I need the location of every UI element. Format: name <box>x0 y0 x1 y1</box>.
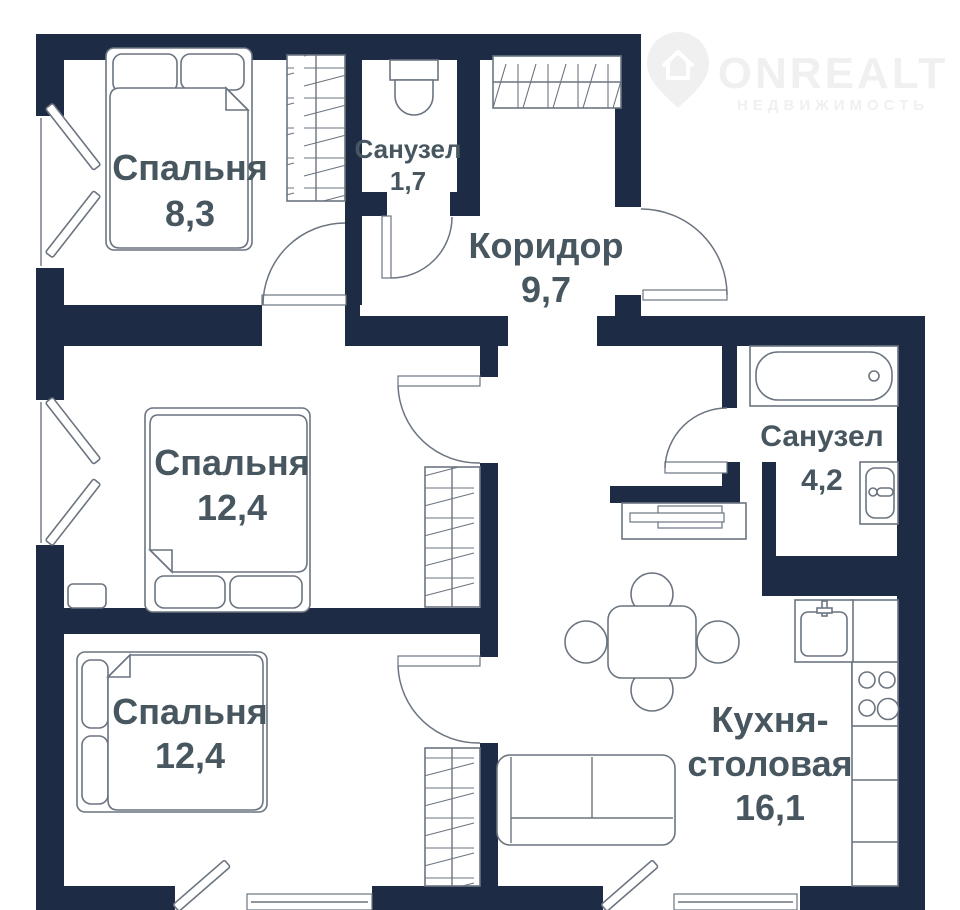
toilet-bowl <box>395 80 433 115</box>
double-bed <box>68 408 310 612</box>
wall-band-right <box>597 316 925 346</box>
logo-brand-text: ONREALT <box>718 49 948 98</box>
room-label-kitchen-line2: столовая <box>687 743 852 784</box>
stove-icon <box>852 662 899 726</box>
wardrobe <box>287 55 345 201</box>
door-bath-small <box>382 216 452 278</box>
pillow <box>82 736 108 804</box>
counter-run <box>852 600 898 886</box>
kitchen-faucet-bar <box>817 608 832 613</box>
door-bath-main <box>665 408 727 473</box>
washbasin-faucet <box>877 488 893 496</box>
nightstand <box>68 584 106 608</box>
burner <box>859 700 875 716</box>
wall-bath-main-left-upper <box>722 346 737 408</box>
chair <box>565 621 607 663</box>
kitchen-sink-icon <box>801 612 847 656</box>
wardrobe <box>425 748 480 886</box>
room-area-kitchen: 16,1 <box>735 787 805 828</box>
pillow <box>230 576 302 608</box>
room-area-bathroom-main: 4,2 <box>801 464 843 497</box>
room-label-bedroom-bottom: Спальня <box>112 691 268 732</box>
burner <box>859 672 875 688</box>
pillow <box>155 576 225 608</box>
door-bedroom-middle <box>398 376 480 463</box>
door-leaf <box>382 216 391 278</box>
door-bedroom-bottom <box>398 656 480 743</box>
burner <box>878 699 899 720</box>
opening-door-bedroom-bottom <box>480 657 498 743</box>
floor-plan-page: Спальня 8,3 Санузел 1,7 Коридор 9,7 Спал… <box>0 0 960 910</box>
logo-pin-icon <box>647 32 709 108</box>
console-drawer <box>630 513 724 522</box>
washbasin-icon <box>860 462 898 524</box>
wall-bath-small-right <box>457 58 480 194</box>
door-leaf <box>262 295 346 305</box>
room-area-bedroom-middle: 12,4 <box>197 487 267 528</box>
logo-tagline-text: НЕДВИЖИМОСТЬ <box>737 97 929 114</box>
wall-bath-main-bottom <box>762 556 898 596</box>
room-label-bathroom-main: Санузел <box>760 420 883 453</box>
washbasin-drain <box>869 488 877 496</box>
door-leaf <box>643 290 727 300</box>
dining-table <box>608 606 696 678</box>
blanket <box>108 655 263 810</box>
door-swing-arc <box>398 386 480 463</box>
door-entrance <box>641 209 727 300</box>
pillow <box>113 54 177 92</box>
pillow <box>82 660 108 728</box>
door-swing-arc <box>391 217 452 278</box>
console-table <box>622 503 746 539</box>
door-swing-arc <box>665 408 727 468</box>
door-swing-arc <box>263 223 345 305</box>
opening-door-bedroom-middle <box>480 377 498 463</box>
room-label-kitchen-line1: Кухня- <box>711 699 828 740</box>
wardrobe <box>425 467 480 607</box>
toilet-icon <box>390 60 438 115</box>
door-swing-arc <box>398 666 480 743</box>
dining-set <box>565 573 739 711</box>
onrealt-logo: ONREALT НЕДВИЖИМОСТЬ <box>647 32 948 114</box>
room-label-corridor: Коридор <box>469 225 624 266</box>
door-swing-arc <box>641 209 727 295</box>
door-leaf <box>398 656 480 666</box>
sofa <box>497 755 675 845</box>
room-area-bedroom-top: 8,3 <box>165 193 215 234</box>
room-area-corridor: 9,7 <box>521 269 571 310</box>
door-leaf <box>665 462 727 473</box>
floor-plan-image: Спальня 8,3 Санузел 1,7 Коридор 9,7 Спал… <box>0 0 960 910</box>
opening-door-bedroom-top <box>262 305 345 346</box>
room-label-bedroom-top: Спальня <box>112 147 268 188</box>
chair <box>697 621 739 663</box>
room-area-bedroom-bottom: 12,4 <box>155 735 225 776</box>
pillow <box>181 54 244 90</box>
door-leaf <box>398 376 480 386</box>
sofa-body <box>497 755 675 845</box>
door-bedroom-top <box>262 223 346 305</box>
wall-kitchen-north <box>610 486 740 503</box>
wall-right <box>897 322 925 910</box>
room-area-bathroom-small: 1,7 <box>390 166 426 196</box>
bathtub-icon <box>750 346 898 406</box>
burner <box>879 672 895 688</box>
bathtub-drain <box>869 371 879 381</box>
wall-bath-main-left-lower <box>762 462 776 560</box>
wall-bath-small-left <box>345 58 362 305</box>
wardrobe <box>493 56 621 108</box>
toilet-tank <box>390 60 438 80</box>
wall-band-left <box>358 316 508 346</box>
double-bed <box>77 652 267 812</box>
room-label-bathroom-small: Санузел <box>355 134 462 164</box>
room-label-bedroom-middle: Спальня <box>154 442 310 483</box>
